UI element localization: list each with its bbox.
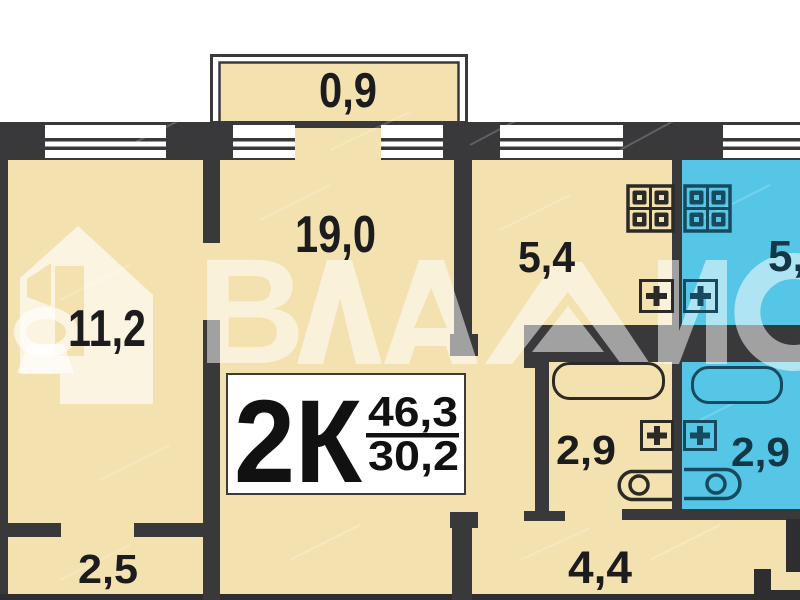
svg-text:2К: 2К [234, 376, 363, 508]
svg-text:5,: 5, [768, 232, 800, 281]
svg-text:11,2: 11,2 [68, 300, 146, 358]
svg-text:5,4: 5,4 [518, 233, 575, 282]
svg-text:4,4: 4,4 [568, 542, 632, 593]
svg-text:46,3: 46,3 [368, 388, 458, 435]
svg-text:2,9: 2,9 [731, 429, 790, 475]
svg-text:0,9: 0,9 [319, 64, 377, 118]
svg-text:2,5: 2,5 [78, 546, 138, 592]
svg-text:2,9: 2,9 [556, 427, 616, 473]
svg-text:19,0: 19,0 [295, 206, 376, 264]
svg-text:30,2: 30,2 [368, 432, 459, 479]
svg-text:В: В [197, 227, 305, 395]
